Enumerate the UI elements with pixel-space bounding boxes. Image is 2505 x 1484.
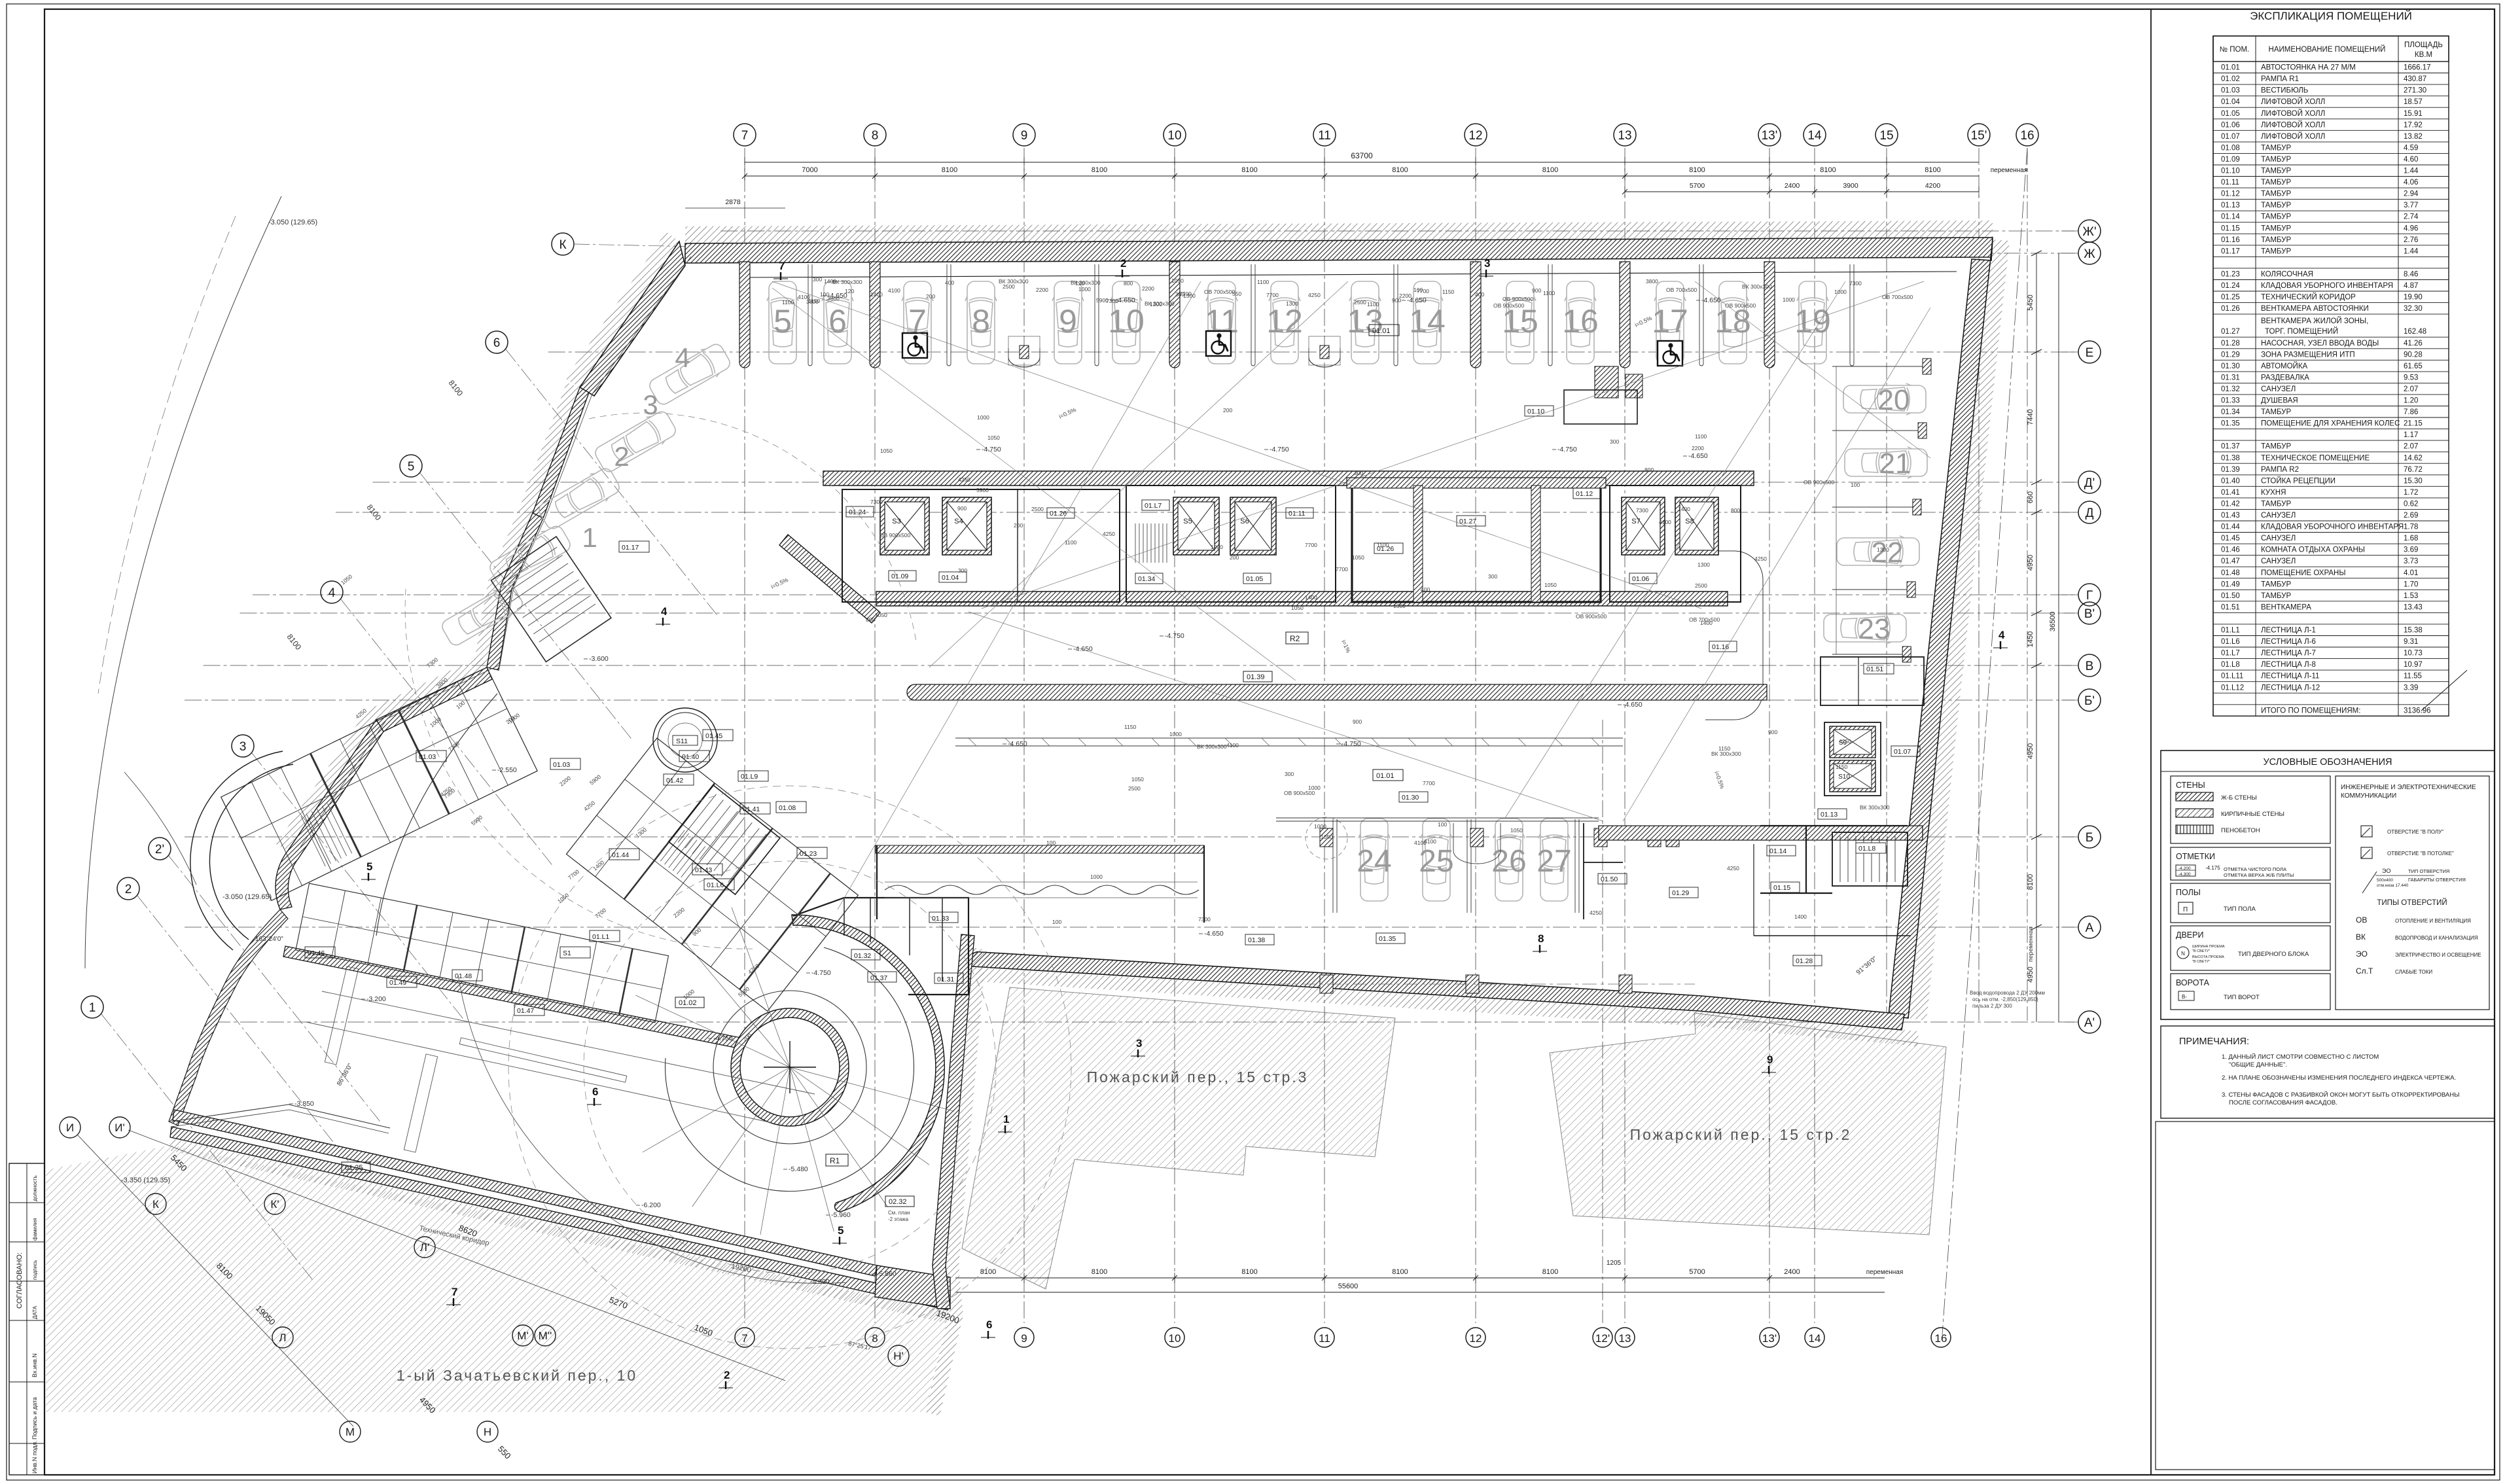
svg-text:01.32: 01.32 — [854, 952, 871, 960]
svg-text:1150: 1150 — [1442, 289, 1455, 295]
svg-text:S4: S4 — [954, 518, 963, 525]
svg-text:-4.650: -4.650 — [1701, 296, 1721, 304]
svg-text:12: 12 — [1470, 1332, 1482, 1345]
svg-text:ДВЕРИ: ДВЕРИ — [2176, 930, 2203, 940]
svg-text:20: 20 — [1878, 384, 1910, 416]
svg-text:ОВ 900х500: ОВ 900х500 — [1803, 479, 1835, 486]
svg-text:ВК 300х300: ВК 300х300 — [1860, 804, 1890, 811]
svg-text:300: 300 — [1354, 470, 1363, 476]
svg-text:1050: 1050 — [1171, 277, 1184, 284]
svg-text:2.76: 2.76 — [2404, 236, 2418, 244]
svg-text:1.70: 1.70 — [2404, 580, 2418, 588]
svg-text:Г: Г — [2086, 589, 2093, 603]
svg-text:R2: R2 — [1290, 634, 1300, 643]
svg-text:ГАБАРИТЫ ОТВЕРСТИЯ: ГАБАРИТЫ ОТВЕРСТИЯ — [2408, 877, 2466, 883]
svg-text:9: 9 — [1021, 1332, 1027, 1345]
svg-text:76.72: 76.72 — [2404, 466, 2423, 474]
svg-text:26: 26 — [1491, 844, 1526, 879]
svg-text:ВОРОТА: ВОРОТА — [2176, 978, 2210, 987]
svg-text:-4.750: -4.750 — [1341, 740, 1361, 748]
svg-text:430.87: 430.87 — [2404, 75, 2426, 83]
svg-text:4.87: 4.87 — [2404, 282, 2418, 290]
svg-text:01.10: 01.10 — [1527, 408, 1544, 415]
svg-text:S7: S7 — [1631, 518, 1640, 525]
svg-text:-5.960: -5.960 — [831, 1211, 851, 1219]
svg-text:РАМПА R2: РАМПА R2 — [2261, 466, 2299, 474]
svg-text:САНУЗЕЛ: САНУЗЕЛ — [2261, 557, 2296, 565]
svg-text:НАИМЕНОВАНИЕ ПОМЕЩЕНИЙ: НАИМЕНОВАНИЕ ПОМЕЩЕНИЙ — [2269, 45, 2386, 54]
svg-text:7300: 7300 — [1849, 280, 1862, 287]
svg-text:63700: 63700 — [1351, 151, 1373, 160]
svg-text:КВ.М: КВ.М — [2415, 51, 2432, 59]
svg-text:1050: 1050 — [1510, 827, 1523, 834]
svg-text:01.L6: 01.L6 — [707, 881, 724, 889]
svg-text:300: 300 — [1488, 573, 1497, 580]
svg-text:ТАМБУР: ТАМБУР — [2261, 190, 2291, 198]
svg-text:300: 300 — [813, 276, 822, 283]
svg-text:200: 200 — [1230, 554, 1239, 561]
svg-text:1100: 1100 — [1695, 433, 1707, 440]
svg-text:7700: 7700 — [1417, 288, 1429, 294]
svg-text:5700: 5700 — [1690, 182, 1705, 190]
svg-text:23: 23 — [1858, 613, 1891, 645]
svg-text:660: 660 — [2027, 491, 2034, 503]
svg-text:ОВ: ОВ — [2356, 915, 2367, 925]
svg-text:ТАМБУР: ТАМБУР — [2261, 592, 2291, 600]
svg-text:1: 1 — [1003, 1113, 1009, 1125]
svg-text:01.13: 01.13 — [2221, 202, 2240, 209]
svg-text:ЛЕСТНИЦА Л-8: ЛЕСТНИЦА Л-8 — [2261, 661, 2316, 669]
svg-text:01.05: 01.05 — [1246, 575, 1263, 583]
svg-text:02.32: 02.32 — [889, 1198, 907, 1206]
svg-text:ТИП ДВЕРНОГО БЛОКА: ТИП ДВЕРНОГО БЛОКА — [2238, 951, 2309, 958]
svg-text:-3.050 (129.65): -3.050 (129.65) — [222, 893, 272, 901]
svg-text:3800: 3800 — [827, 295, 840, 302]
svg-text:1400: 1400 — [870, 291, 883, 298]
svg-text:ТАМБУР: ТАМБУР — [2261, 500, 2291, 508]
svg-text:СТОЙКА РЕЦЕПЦИИ: СТОЙКА РЕЦЕПЦИИ — [2261, 476, 2336, 485]
svg-text:4.01: 4.01 — [2404, 569, 2418, 577]
svg-text:01.L8: 01.L8 — [2221, 661, 2240, 669]
svg-text:4100: 4100 — [888, 287, 900, 294]
svg-text:1050: 1050 — [1352, 554, 1364, 561]
svg-text:5: 5 — [366, 860, 372, 873]
svg-text:36500: 36500 — [2049, 612, 2057, 632]
svg-text:27: 27 — [1537, 844, 1571, 879]
svg-text:S10: S10 — [1838, 773, 1850, 781]
svg-text:Д': Д' — [2084, 476, 2095, 490]
svg-text:11: 11 — [1318, 129, 1331, 143]
svg-text:1300: 1300 — [1393, 603, 1406, 609]
svg-text:1300: 1300 — [1697, 561, 1710, 568]
svg-text:01.42: 01.42 — [666, 777, 683, 785]
svg-text:01.16: 01.16 — [1712, 643, 1729, 651]
svg-text:КЛАДОВАЯ УБОРОЧНОГО ИНВЕНТАРЯ: КЛАДОВАЯ УБОРОЧНОГО ИНВЕНТАРЯ — [2261, 523, 2404, 531]
svg-text:2878: 2878 — [725, 198, 741, 206]
svg-text:КОММУНИКАЦИИ: КОММУНИКАЦИИ — [2341, 792, 2396, 800]
svg-text:15.38: 15.38 — [2404, 627, 2423, 635]
svg-text:ОТВЕРСТИЕ "В ПОЛУ": ОТВЕРСТИЕ "В ПОЛУ" — [2387, 829, 2443, 835]
svg-text:В': В' — [2084, 607, 2095, 621]
svg-text:4100: 4100 — [1659, 519, 1671, 525]
svg-text:-5.480: -5.480 — [789, 1165, 808, 1173]
svg-text:1666.17: 1666.17 — [2404, 64, 2431, 72]
svg-text:2.07: 2.07 — [2404, 443, 2418, 451]
svg-text:1400: 1400 — [1305, 594, 1317, 601]
svg-text:N: N — [2181, 951, 2185, 957]
svg-text:01.34: 01.34 — [2221, 408, 2240, 416]
svg-text:4250: 4250 — [958, 476, 970, 483]
svg-text:ТАМБУР: ТАМБУР — [2261, 202, 2291, 209]
svg-text:01.39: 01.39 — [2221, 466, 2240, 474]
svg-text:9: 9 — [1059, 303, 1077, 340]
svg-text:01.11: 01.11 — [2221, 179, 2239, 186]
svg-text:Ввод водопровода 2 ДУ 200мм: Ввод водопровода 2 ДУ 200мм — [1970, 990, 2045, 996]
svg-text:САНУЗЕЛ: САНУЗЕЛ — [2261, 535, 2296, 542]
svg-text:Б': Б' — [2084, 694, 2095, 708]
svg-text:3: 3 — [240, 740, 247, 754]
svg-text:7: 7 — [452, 1286, 457, 1298]
svg-text:ВЕНТКАМЕРА: ВЕНТКАМЕРА — [2261, 603, 2311, 611]
svg-text:01.04: 01.04 — [2221, 98, 2240, 106]
svg-text:2400: 2400 — [1784, 1268, 1800, 1276]
svg-text:8100: 8100 — [1542, 1268, 1558, 1276]
svg-text:01.37: 01.37 — [2221, 443, 2240, 451]
svg-text:S3: S3 — [892, 518, 900, 525]
svg-text:"ОБЩИЕ ДАННЫЕ".: "ОБЩИЕ ДАННЫЕ". — [2229, 1061, 2287, 1069]
svg-text:АВТОМОЙКА: АВТОМОЙКА — [2261, 362, 2308, 370]
svg-text:1150: 1150 — [1836, 764, 1848, 770]
svg-text:1. ДАННЫЙ ЛИСТ СМОТРИ СОВМЕСТН: 1. ДАННЫЙ ЛИСТ СМОТРИ СОВМЕСТНО С ЛИСТОМ — [2222, 1053, 2379, 1061]
svg-text:4250: 4250 — [1727, 865, 1739, 872]
svg-text:6: 6 — [828, 303, 847, 340]
svg-text:61.65: 61.65 — [2404, 362, 2423, 370]
svg-text:01.50: 01.50 — [2221, 592, 2240, 600]
svg-text:24: 24 — [1357, 844, 1391, 879]
svg-text:5: 5 — [838, 1224, 844, 1237]
svg-text:-2 этажа: -2 этажа — [888, 1216, 909, 1222]
svg-text:7700: 7700 — [1266, 292, 1279, 298]
svg-text:1050: 1050 — [880, 448, 893, 454]
svg-text:4.60: 4.60 — [2404, 156, 2418, 164]
svg-text:ЛЕСТНИЦА Л-11: ЛЕСТНИЦА Л-11 — [2261, 673, 2319, 680]
svg-text:10: 10 — [1169, 1332, 1181, 1345]
svg-text:7700: 7700 — [1336, 566, 1348, 573]
svg-text:01.03: 01.03 — [419, 753, 436, 761]
svg-text:Н: Н — [484, 1426, 491, 1438]
svg-text:1100: 1100 — [1257, 279, 1270, 285]
svg-text:-4.750: -4.750 — [811, 969, 831, 977]
svg-text:1400: 1400 — [1794, 913, 1807, 920]
svg-text:Пожарский пер., 15 стр.3: Пожарский пер., 15 стр.3 — [1087, 1069, 1309, 1086]
svg-text:01.35: 01.35 — [2221, 420, 2240, 428]
svg-text:ТИП ПОЛА: ТИП ПОЛА — [2224, 906, 2256, 913]
svg-text:4100: 4100 — [1414, 839, 1427, 846]
svg-text:800: 800 — [866, 616, 875, 623]
svg-text:8100: 8100 — [1392, 1268, 1408, 1276]
svg-text:5: 5 — [773, 303, 792, 340]
svg-text:1100: 1100 — [782, 299, 794, 306]
svg-text:1050: 1050 — [1321, 834, 1333, 840]
svg-text:15: 15 — [1879, 129, 1893, 143]
svg-text:01.L6: 01.L6 — [2221, 638, 2240, 646]
svg-text:01.23: 01.23 — [2221, 270, 2240, 278]
svg-text:ТАМБУР: ТАМБУР — [2261, 236, 2291, 244]
svg-text:8100: 8100 — [1092, 166, 1107, 174]
svg-text:01.31: 01.31 — [937, 976, 954, 983]
svg-text:2.69: 2.69 — [2404, 512, 2418, 520]
svg-text:1400: 1400 — [1678, 506, 1690, 512]
svg-text:ЭКСПЛИКАЦИЯ ПОМЕЩЕНИЙ: ЭКСПЛИКАЦИЯ ПОМЕЩЕНИЙ — [2250, 10, 2412, 22]
svg-text:12': 12' — [1595, 1332, 1610, 1345]
svg-text:-4.750: -4.750 — [713, 1034, 733, 1042]
svg-text:4.96: 4.96 — [2404, 224, 2418, 232]
svg-text:1000: 1000 — [1783, 296, 1795, 303]
svg-text:Сл.Т: Сл.Т — [2356, 966, 2373, 976]
svg-text:В-: В- — [2182, 994, 2187, 1000]
svg-text:01.14: 01.14 — [1769, 847, 1786, 855]
svg-text:01.49: 01.49 — [389, 979, 406, 987]
svg-text:163°24'0": 163°24'0" — [255, 936, 283, 943]
svg-text:01.44: 01.44 — [612, 851, 629, 859]
svg-text:7300: 7300 — [1636, 507, 1648, 514]
svg-text:ЛЕСТНИЦА Л-6: ЛЕСТНИЦА Л-6 — [2261, 638, 2316, 646]
svg-text:8100: 8100 — [1689, 166, 1705, 174]
svg-text:41.26: 41.26 — [2404, 340, 2423, 347]
svg-text:01.15: 01.15 — [2221, 224, 2240, 232]
svg-text:"В СВЕТУ": "В СВЕТУ" — [2192, 960, 2210, 964]
svg-text:900: 900 — [957, 505, 967, 512]
svg-text:16: 16 — [1562, 303, 1599, 340]
svg-text:1000: 1000 — [1078, 286, 1091, 292]
svg-text:1: 1 — [582, 522, 597, 553]
svg-text:должность: должность — [32, 1175, 38, 1201]
svg-text:8: 8 — [872, 129, 879, 143]
svg-text:14: 14 — [1809, 1332, 1821, 1345]
svg-text:ОТМЕТКА ВЕРХА Ж/Б ПЛИТЫ: ОТМЕТКА ВЕРХА Ж/Б ПЛИТЫ — [2224, 872, 2294, 878]
svg-text:01.29: 01.29 — [2221, 351, 2240, 359]
svg-text:1000: 1000 — [1211, 544, 1223, 550]
svg-text:1450: 1450 — [2027, 631, 2034, 647]
svg-text:П: П — [2183, 906, 2188, 913]
svg-text:01.30: 01.30 — [2221, 362, 2240, 370]
svg-text:ОТМЕТКИ: ОТМЕТКИ — [2176, 852, 2215, 861]
svg-text:ТАМБУР: ТАМБУР — [2261, 179, 2291, 186]
svg-text:800: 800 — [1644, 467, 1654, 473]
svg-text:01.03: 01.03 — [553, 761, 570, 769]
svg-text:8100: 8100 — [1820, 166, 1836, 174]
svg-text:2': 2' — [155, 843, 164, 857]
svg-text:ОВ 700х500: ОВ 700х500 — [1689, 616, 1720, 623]
svg-text:1100: 1100 — [1065, 539, 1077, 546]
svg-text:2200: 2200 — [1692, 445, 1704, 451]
svg-text:7: 7 — [741, 1332, 747, 1345]
svg-text:7: 7 — [779, 260, 785, 272]
svg-text:01.28: 01.28 — [1796, 957, 1813, 965]
svg-text:9.53: 9.53 — [2404, 374, 2418, 381]
svg-text:ДУШЕВАЯ: ДУШЕВАЯ — [2261, 397, 2298, 405]
svg-text:2400: 2400 — [1785, 182, 1800, 190]
svg-text:01.41: 01.41 — [743, 805, 760, 813]
svg-text:ЭО: ЭО — [2356, 949, 2368, 959]
svg-text:12: 12 — [1468, 129, 1482, 143]
svg-text:01.L9: 01.L9 — [741, 773, 758, 781]
svg-text:3: 3 — [1484, 257, 1490, 270]
svg-text:1100: 1100 — [1367, 301, 1379, 308]
svg-text:21: 21 — [1879, 448, 1911, 480]
svg-text:8: 8 — [872, 1332, 878, 1345]
svg-text:1000: 1000 — [1090, 874, 1103, 880]
svg-text:01.L7: 01.L7 — [1145, 502, 1162, 510]
svg-text:И: И — [66, 1122, 74, 1134]
svg-text:1.20: 1.20 — [2404, 397, 2418, 405]
svg-text:ПОСЛЕ СОГЛАСОВАНИЯ ФАСАДОВ.: ПОСЛЕ СОГЛАСОВАНИЯ ФАСАДОВ. — [2229, 1099, 2337, 1106]
svg-text:10.97: 10.97 — [2404, 661, 2423, 669]
svg-text:2: 2 — [614, 441, 629, 472]
svg-text:ТИП ОТВЕРСТИЯ: ТИП ОТВЕРСТИЯ — [2408, 868, 2449, 874]
svg-text:400: 400 — [945, 279, 954, 286]
svg-text:ОВ 900х500: ОВ 900х500 — [1493, 302, 1525, 309]
svg-text:ЛИФТОВОЙ ХОЛЛ: ЛИФТОВОЙ ХОЛЛ — [2261, 132, 2325, 141]
svg-text:ОВ 700х500: ОВ 700х500 — [1882, 294, 1913, 300]
svg-text:5900: 5900 — [976, 487, 989, 493]
svg-text:1.78: 1.78 — [2404, 523, 2418, 531]
svg-text:ВК 300х300: ВК 300х300 — [832, 279, 862, 285]
svg-text:4250: 4250 — [1590, 910, 1602, 916]
svg-text:17.92: 17.92 — [2404, 121, 2423, 129]
svg-text:S11: S11 — [676, 737, 688, 745]
svg-text:300: 300 — [958, 567, 967, 574]
svg-text:ТИП ВОРОТ: ТИП ВОРОТ — [2224, 994, 2260, 1001]
svg-text:1150: 1150 — [1124, 724, 1137, 730]
svg-text:01.17: 01.17 — [622, 544, 639, 552]
svg-text:1.44: 1.44 — [2404, 168, 2419, 175]
svg-text:3.69: 3.69 — [2404, 546, 2418, 554]
svg-text:КОЛЯСОЧНАЯ: КОЛЯСОЧНАЯ — [2261, 270, 2313, 278]
svg-text:ТАМБУР: ТАМБУР — [2261, 213, 2291, 221]
svg-text:2. НА ПЛАНЕ ОБОЗНАЧЕНЫ ИЗМЕНЕН: 2. НА ПЛАНЕ ОБОЗНАЧЕНЫ ИЗМЕНЕНИЯ ПОСЛЕДН… — [2222, 1074, 2456, 1082]
svg-text:01.01: 01.01 — [1376, 772, 1395, 780]
svg-text:ТАМБУР: ТАМБУР — [2261, 168, 2291, 175]
svg-text:переменная: переменная — [1866, 1269, 1904, 1276]
svg-text:32.30: 32.30 — [2404, 305, 2423, 313]
svg-text:ТАМБУР: ТАМБУР — [2261, 247, 2291, 255]
svg-text:4250: 4250 — [1308, 292, 1321, 298]
svg-text:1300: 1300 — [1286, 300, 1298, 307]
svg-text:-4.650: -4.650 — [1688, 452, 1708, 460]
svg-text:ось на отм. -2,850(129,850): ось на отм. -2,850(129,850) — [1972, 997, 2038, 1002]
svg-text:01.02: 01.02 — [2221, 75, 2240, 83]
svg-text:-4.750: -4.750 — [1557, 446, 1577, 453]
svg-text:ТИПЫ ОТВЕРСТИЙ: ТИПЫ ОТВЕРСТИЙ — [2377, 898, 2447, 907]
svg-text:01.51: 01.51 — [1866, 665, 1883, 673]
svg-text:4.59: 4.59 — [2404, 144, 2418, 152]
svg-text:01.24: 01.24 — [2221, 282, 2240, 290]
svg-text:2.94: 2.94 — [2404, 190, 2419, 198]
svg-text:12: 12 — [1266, 303, 1303, 340]
svg-text:200: 200 — [1014, 522, 1023, 529]
svg-text:01.46: 01.46 — [308, 949, 325, 957]
svg-text:01.31: 01.31 — [2221, 374, 2240, 381]
svg-text:К: К — [559, 238, 566, 252]
svg-text:6: 6 — [592, 1086, 598, 1098]
svg-text:4200: 4200 — [1925, 182, 1941, 190]
svg-text:ТАМБУР: ТАМБУР — [2261, 443, 2291, 451]
svg-text:300: 300 — [1610, 438, 1619, 445]
svg-text:9.31: 9.31 — [2404, 638, 2418, 646]
svg-text:ТАМБУР: ТАМБУР — [2261, 144, 2291, 152]
svg-text:САНУЗЕЛ: САНУЗЕЛ — [2261, 385, 2296, 393]
svg-text:8.46: 8.46 — [2404, 270, 2418, 278]
svg-text:7300: 7300 — [870, 499, 883, 505]
svg-text:7440: 7440 — [2027, 409, 2034, 425]
svg-text:01.15: 01.15 — [1773, 884, 1790, 892]
svg-text:ТАМБУР: ТАМБУР — [2261, 408, 2291, 416]
svg-text:01.08: 01.08 — [779, 804, 796, 812]
svg-text:-4.650: -4.650 — [1204, 930, 1224, 938]
svg-text:120: 120 — [845, 288, 854, 294]
svg-text:Д: Д — [2086, 506, 2094, 520]
svg-text:900: 900 — [1768, 729, 1777, 735]
svg-text:РАМПА R1: РАМПА R1 — [2261, 75, 2299, 83]
svg-text:01.L11: 01.L11 — [2221, 673, 2243, 680]
svg-text:100: 100 — [1052, 919, 1061, 925]
svg-text:19: 19 — [1794, 303, 1831, 340]
svg-text:01.09: 01.09 — [2221, 156, 2240, 164]
svg-text:13.82: 13.82 — [2404, 133, 2423, 141]
svg-text:S5: S5 — [1183, 518, 1192, 525]
svg-text:01.33: 01.33 — [932, 915, 949, 923]
svg-text:01.07: 01.07 — [1894, 748, 1911, 756]
svg-text:ОТМЕТКА ЧИСТОГО ПОЛА: ОТМЕТКА ЧИСТОГО ПОЛА — [2224, 866, 2286, 872]
svg-text:ПРИМЕЧАНИЯ:: ПРИМЕЧАНИЯ: — [2179, 1036, 2249, 1047]
svg-text:3: 3 — [643, 389, 658, 420]
svg-text:01.17: 01.17 — [2221, 247, 2240, 255]
svg-text:01.44: 01.44 — [2221, 523, 2240, 531]
svg-text:1100: 1100 — [1543, 290, 1555, 296]
svg-text:М: М — [346, 1426, 355, 1438]
svg-text:01.14: 01.14 — [2221, 213, 2240, 221]
svg-text:И': И' — [115, 1122, 124, 1134]
svg-text:Вх.инв.N: Вх.инв.N — [31, 1353, 38, 1377]
svg-text:01.13: 01.13 — [1821, 811, 1838, 819]
svg-text:ЛИФТОВОЙ ХОЛЛ: ЛИФТОВОЙ ХОЛЛ — [2261, 97, 2325, 106]
svg-text:100: 100 — [1851, 482, 1860, 488]
svg-text:01.02: 01.02 — [679, 999, 697, 1007]
svg-text:01.39: 01.39 — [1247, 673, 1265, 681]
svg-text:2: 2 — [125, 883, 132, 896]
svg-text:-6.200: -6.200 — [641, 1201, 661, 1209]
svg-text:01.11: 01.11 — [1288, 510, 1306, 518]
svg-text:800: 800 — [1731, 507, 1740, 514]
svg-text:01.32: 01.32 — [2221, 385, 2240, 393]
svg-text:1.68: 1.68 — [2404, 535, 2418, 542]
svg-text:8100: 8100 — [1241, 1268, 1257, 1276]
svg-text:ОВ 900х500: ОВ 900х500 — [1284, 790, 1315, 796]
svg-text:4: 4 — [661, 605, 667, 618]
svg-text:4100: 4100 — [1226, 742, 1239, 749]
svg-text:ЭЛЕКТРИЧЕСТВО И ОСВЕЩЕНИЕ: ЭЛЕКТРИЧЕСТВО И ОСВЕЩЕНИЕ — [2395, 952, 2481, 958]
svg-text:СОГЛАСОВАНО:: СОГЛАСОВАНО: — [16, 1252, 24, 1309]
svg-text:11.55: 11.55 — [2404, 673, 2422, 680]
svg-text:01.L1: 01.L1 — [592, 933, 609, 941]
svg-text:3.73: 3.73 — [2404, 557, 2418, 565]
svg-text:3.77: 3.77 — [2404, 202, 2418, 209]
svg-text:ВОДОПРОВОД И КАНАЛИЗАЦИЯ: ВОДОПРОВОД И КАНАЛИЗАЦИЯ — [2395, 935, 2478, 941]
svg-text:2500: 2500 — [1031, 506, 1044, 512]
svg-text:4: 4 — [675, 342, 690, 373]
svg-text:01.26: 01.26 — [1050, 510, 1067, 518]
